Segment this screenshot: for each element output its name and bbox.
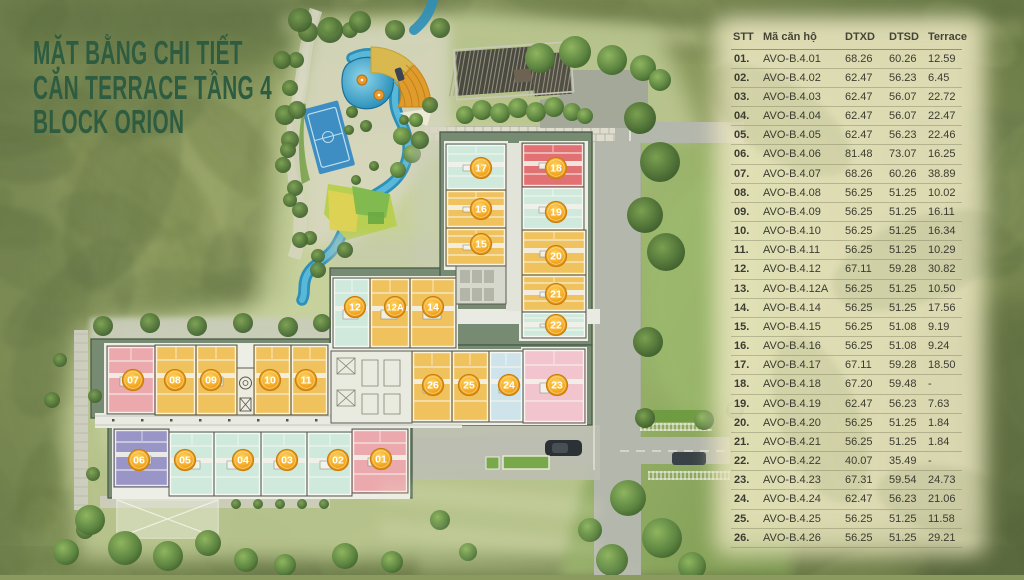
svg-text:03: 03 [281,454,293,466]
svg-text:15: 15 [475,238,487,250]
svg-text:26: 26 [427,379,439,391]
svg-text:23: 23 [551,379,563,391]
svg-text:17: 17 [475,162,487,174]
svg-text:09: 09 [205,374,217,386]
svg-text:25: 25 [463,379,475,391]
svg-text:18: 18 [550,162,562,174]
svg-text:21: 21 [550,288,562,300]
svg-text:16: 16 [475,203,487,215]
svg-text:04: 04 [237,454,249,466]
svg-text:12: 12 [349,301,361,313]
svg-text:08: 08 [169,374,181,386]
svg-text:10: 10 [264,374,276,386]
svg-text:02: 02 [332,454,344,466]
svg-text:22: 22 [550,319,562,331]
svg-text:06: 06 [133,454,145,466]
svg-text:19: 19 [550,206,562,218]
svg-text:05: 05 [179,454,191,466]
svg-text:12A: 12A [386,302,404,313]
svg-text:14: 14 [427,301,439,313]
svg-text:01: 01 [375,453,387,465]
svg-text:24: 24 [503,379,515,391]
svg-text:20: 20 [550,250,562,262]
svg-text:11: 11 [300,374,311,386]
svg-text:07: 07 [127,374,139,386]
